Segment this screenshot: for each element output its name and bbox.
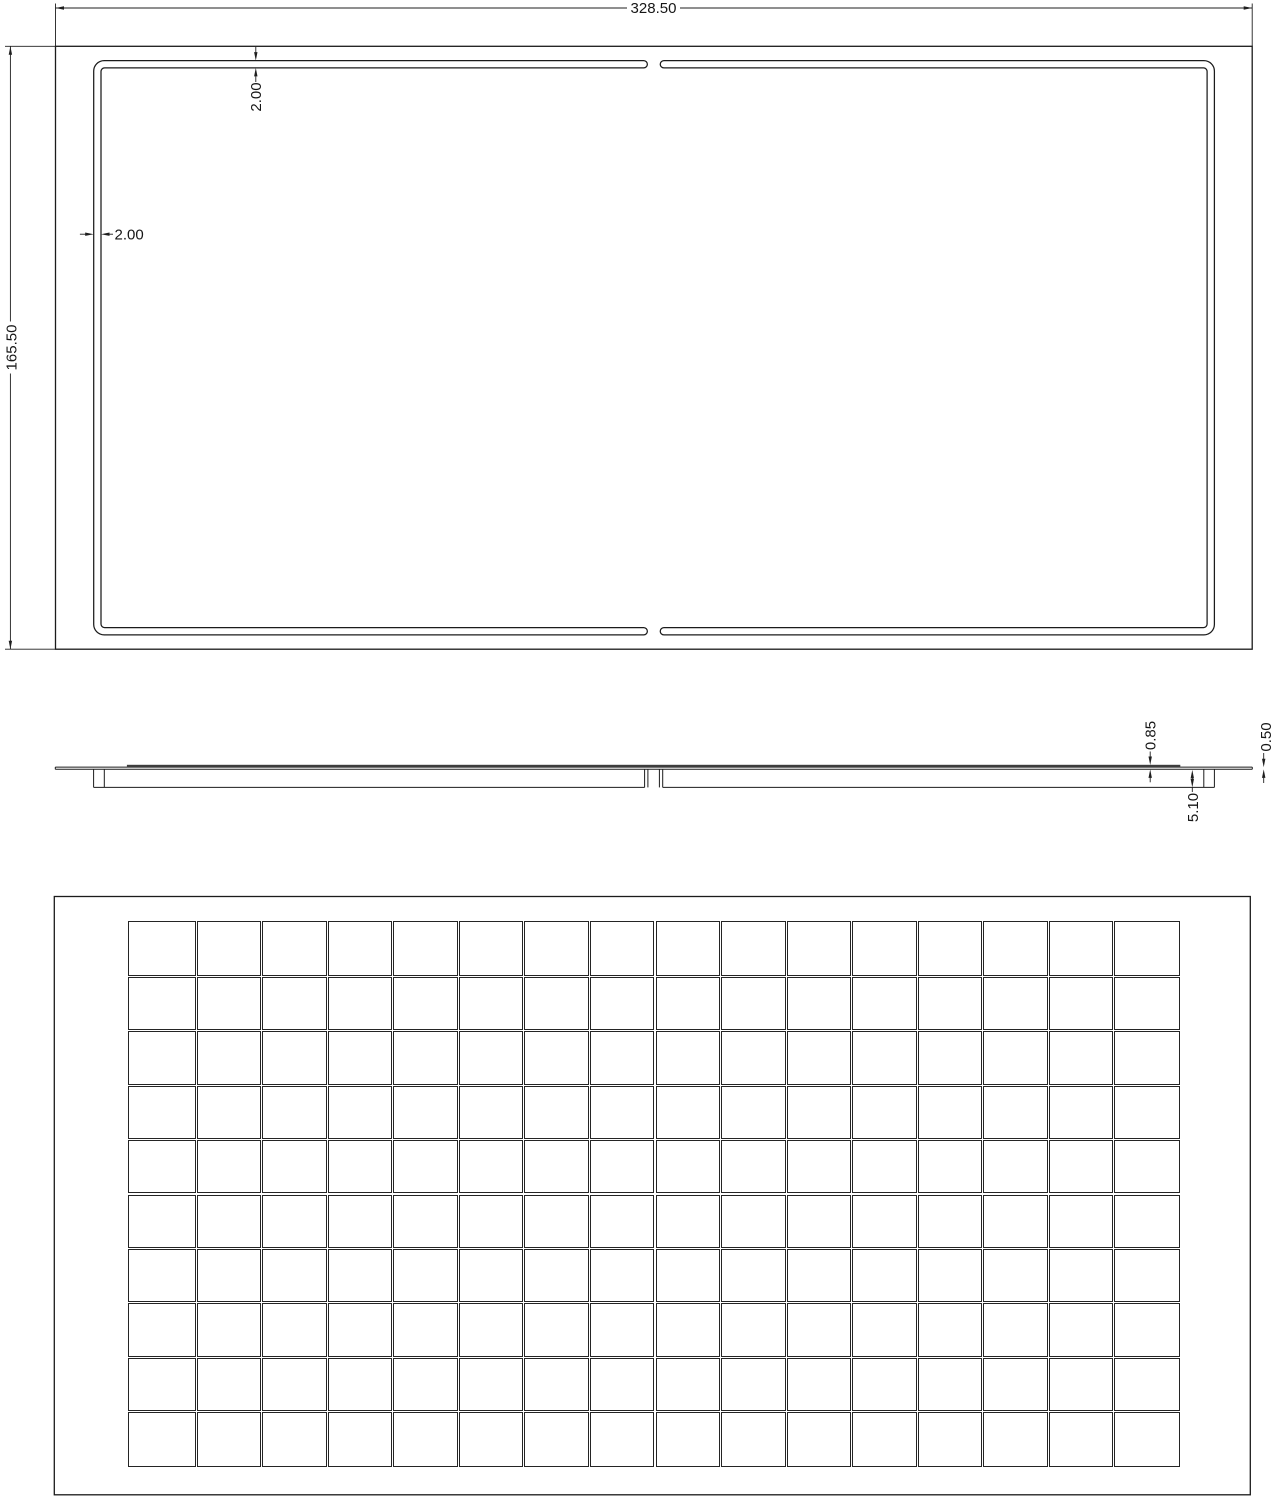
svg-text:2.00: 2.00 xyxy=(115,227,144,244)
svg-text:165.50: 165.50 xyxy=(3,325,20,371)
svg-text:2.00: 2.00 xyxy=(248,82,265,111)
svg-text:328.50: 328.50 xyxy=(631,0,677,17)
svg-text:0.85: 0.85 xyxy=(1143,721,1160,750)
svg-text:5.10: 5.10 xyxy=(1185,793,1202,822)
svg-text:0.50: 0.50 xyxy=(1258,722,1272,751)
